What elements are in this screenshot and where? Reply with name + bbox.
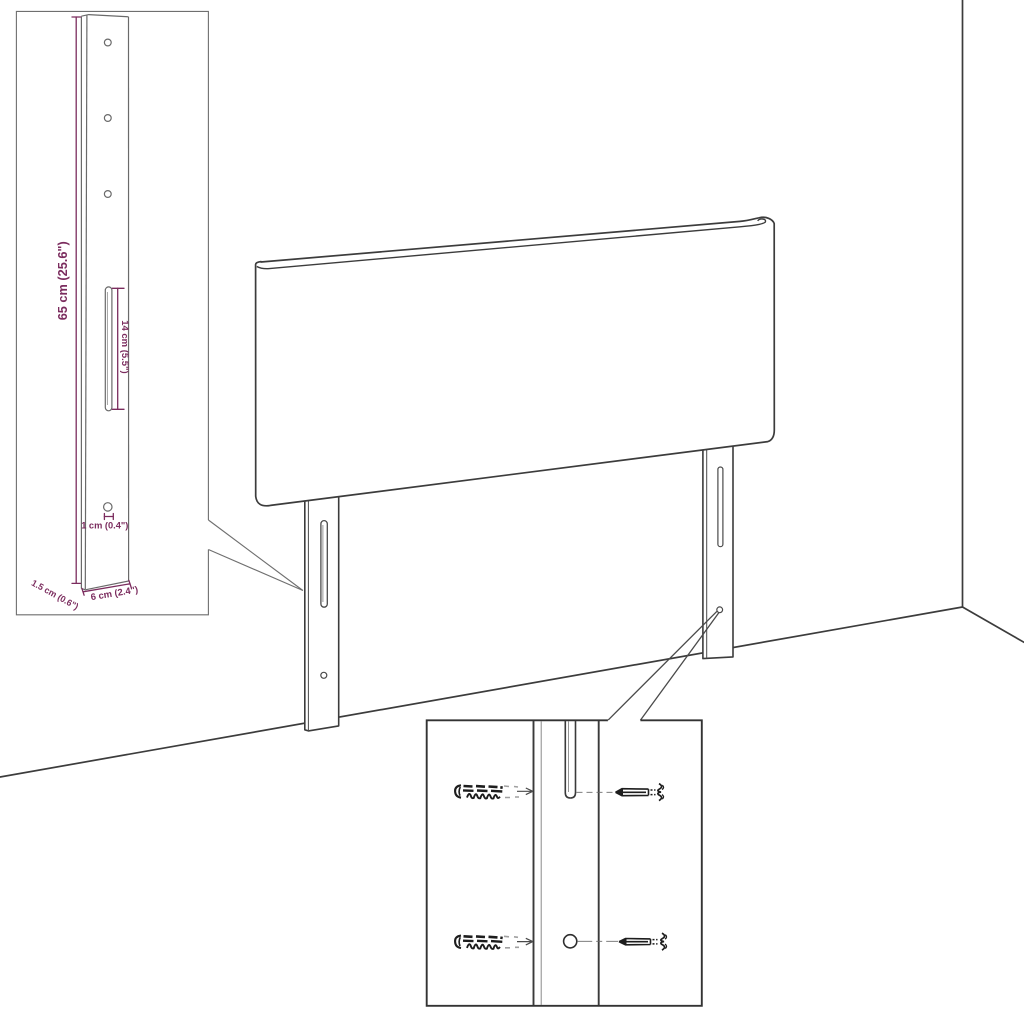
svg-text:65 cm (25.6"): 65 cm (25.6") [55, 241, 70, 320]
svg-text:14 cm (5.5"): 14 cm (5.5") [119, 320, 130, 374]
svg-text:1 cm (0.4"): 1 cm (0.4") [81, 519, 128, 530]
